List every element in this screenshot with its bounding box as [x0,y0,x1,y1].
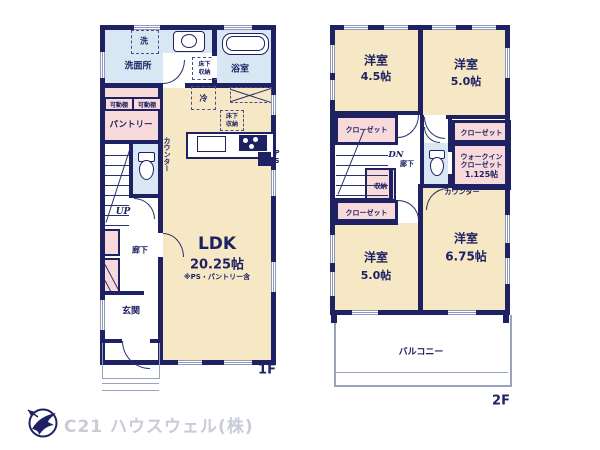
window [330,80,335,100]
wall [448,140,510,144]
wall [330,198,393,202]
window [505,215,510,243]
window [344,25,368,30]
bedroom-5-0-bottom-name: 洋室 [364,249,388,266]
counter-label-2f: カウンター [445,187,480,197]
walkin-closet-box: ウォークインクローゼット 1.125帖 [452,143,511,190]
walkin-closet-door-gap [448,152,452,174]
window [330,235,335,263]
bedroom-4-5-size: 4.5帖 [361,68,392,84]
balcony-rail [334,372,508,373]
company-logo [24,402,60,440]
window [505,258,510,284]
company-footer: C21 ハウスウェル(株) [0,398,600,450]
closet-a-box: クローゼット [335,115,398,145]
bedroom-5-0-top-size: 5.0帖 [451,73,482,89]
wall [418,188,423,310]
balcony-label: バルコニー [399,345,444,358]
bedroom-5-0-bottom-size: 5.0帖 [361,267,392,283]
hallway-label-2f: 廊下 [400,159,414,169]
walkin-closet-label: ウォークインクローゼット [459,153,505,170]
bedroom-6-75-name: 洋室 [454,230,478,247]
floorplan-2f: クローゼット クローゼット クローゼット ウォークインクローゼット 1.125帖… [0,0,600,450]
balcony-post [503,313,509,323]
wall [420,115,424,188]
floorplan-page: 床下収納 冷 床下収納 可動棚 可動棚 [0,0,600,450]
balcony-post [331,313,337,323]
wall [446,115,510,119]
bedroom-5-0-bottom-door [398,200,419,220]
window [330,272,335,296]
wall [389,168,393,202]
company-name: C21 ハウスウェル(株) [64,412,254,437]
window [384,25,408,30]
bedroom-4-5-door [398,115,419,138]
wall [418,25,423,115]
toilet-2f-door [424,127,440,143]
closet-a-label: クローゼット [346,125,388,135]
window [472,25,496,30]
window [330,45,335,73]
bedroom-4-5-name: 洋室 [364,52,388,69]
window [505,48,510,78]
closet-c-label: クローゼット [346,208,388,218]
closet-b-label: クローゼット [461,128,503,138]
bedroom-6-75-size: 6.75帖 [445,248,487,265]
wall [330,219,398,223]
stairs-2f [336,146,388,198]
window [432,25,456,30]
bedroom-5-0-top-name: 洋室 [454,56,478,73]
walkin-closet-size: 1.125帖 [465,169,498,180]
